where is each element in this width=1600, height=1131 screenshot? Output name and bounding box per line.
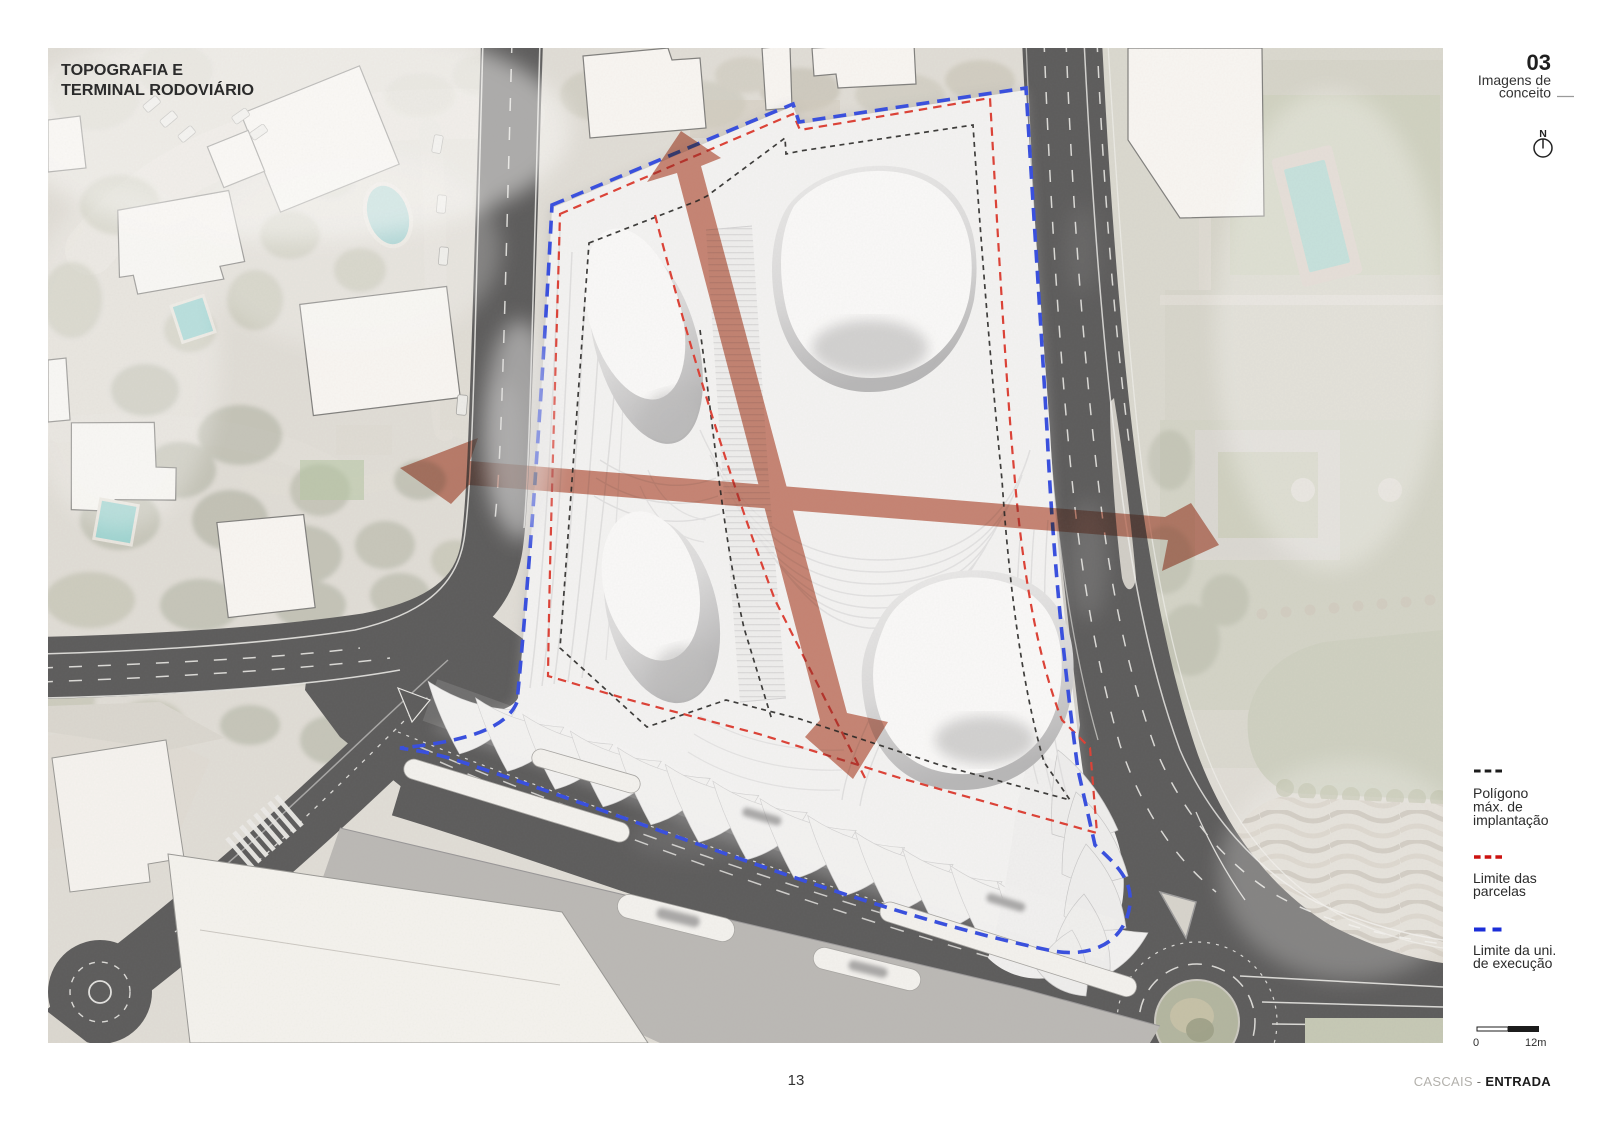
svg-text:13: 13	[788, 1072, 805, 1089]
svg-text:parcelas: parcelas	[1473, 883, 1526, 899]
svg-text:conceito: conceito	[1499, 85, 1551, 101]
svg-text:TOPOGRAFIA E: TOPOGRAFIA E	[61, 62, 183, 79]
svg-text:de execução: de execução	[1473, 955, 1553, 971]
svg-text:CASCAIS - ENTRADA: CASCAIS - ENTRADA	[1414, 1074, 1552, 1089]
svg-text:TERMINAL RODOVIÁRIO: TERMINAL RODOVIÁRIO	[61, 80, 254, 99]
svg-text:12m: 12m	[1525, 1037, 1546, 1049]
svg-text:0: 0	[1473, 1037, 1479, 1049]
svg-text:implantação: implantação	[1473, 812, 1549, 828]
svg-text:N: N	[1539, 128, 1547, 140]
